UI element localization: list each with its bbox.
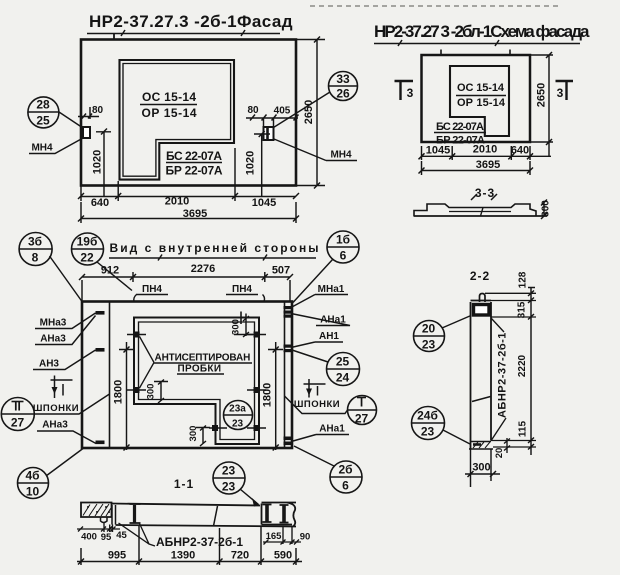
svg-text:2б: 2б [338, 463, 352, 477]
svg-text:АНа3: АНа3 [42, 420, 68, 431]
svg-text:БС 22-07А: БС 22-07А [166, 149, 222, 163]
svg-text:80: 80 [92, 105, 104, 116]
svg-text:23: 23 [232, 419, 244, 430]
svg-text:23а: 23а [229, 404, 246, 415]
svg-text:4б: 4б [25, 469, 39, 483]
svg-text:3б: 3б [28, 235, 42, 249]
svg-text:АНа1: АНа1 [319, 424, 345, 435]
svg-text:27: 27 [355, 412, 369, 426]
svg-text:3: 3 [557, 86, 564, 100]
svg-text:ОР 15-14: ОР 15-14 [457, 97, 506, 109]
svg-text:2220: 2220 [517, 354, 528, 377]
svg-text:300: 300 [146, 384, 157, 400]
svg-text:8: 8 [32, 251, 39, 265]
svg-text:ОР 15-14: ОР 15-14 [142, 106, 197, 120]
svg-text:АБНР2-37-2б-1: АБНР2-37-2б-1 [156, 535, 244, 549]
svg-text:300: 300 [472, 462, 490, 474]
svg-text:6: 6 [342, 479, 349, 493]
svg-text:720: 720 [231, 550, 249, 562]
svg-text:2-2: 2-2 [470, 269, 490, 283]
svg-text:АБНР2-37-2б-1: АБНР2-37-2б-1 [497, 332, 509, 418]
svg-text:33: 33 [336, 72, 350, 86]
svg-text:3695: 3695 [476, 159, 500, 171]
svg-text:995: 995 [108, 550, 126, 562]
svg-text:ШПОНКИ: ШПОНКИ [294, 399, 340, 410]
svg-text:24: 24 [336, 371, 350, 385]
svg-text:23: 23 [422, 338, 436, 352]
svg-text:23: 23 [222, 464, 236, 478]
svg-text:ПН4: ПН4 [142, 284, 162, 295]
svg-text:1020: 1020 [245, 151, 257, 175]
svg-text:128: 128 [518, 271, 529, 288]
svg-text:912: 912 [101, 265, 119, 277]
svg-text:1-1: 1-1 [174, 477, 194, 491]
svg-text:МНа1: МНа1 [318, 284, 345, 295]
svg-text:95: 95 [101, 532, 112, 543]
svg-text:25: 25 [36, 114, 50, 128]
svg-text:640: 640 [91, 197, 109, 209]
svg-text:10: 10 [26, 485, 40, 499]
svg-text:22: 22 [80, 251, 94, 265]
svg-text:2010: 2010 [165, 196, 189, 208]
svg-text:АНТИСЕПТИРОВАН: АНТИСЕПТИРОВАН [155, 353, 252, 364]
svg-text:АНа3: АНа3 [40, 334, 66, 345]
svg-text:6: 6 [340, 249, 347, 263]
svg-text:ПРОБКИ: ПРОБКИ [178, 364, 223, 375]
svg-text:МН4: МН4 [330, 150, 352, 161]
svg-text:1020: 1020 [92, 150, 104, 174]
svg-text:23: 23 [421, 425, 435, 439]
svg-text:20: 20 [422, 322, 436, 336]
svg-text:25: 25 [336, 355, 350, 369]
svg-text:1800: 1800 [262, 383, 274, 407]
svg-text:300: 300 [188, 426, 199, 442]
svg-text:90: 90 [300, 532, 311, 543]
svg-text:МНа3: МНа3 [40, 318, 67, 329]
svg-text:2010: 2010 [473, 144, 497, 156]
svg-text:20: 20 [494, 448, 505, 459]
svg-text:МН4: МН4 [31, 143, 53, 154]
svg-text:300: 300 [231, 319, 242, 335]
svg-text:НР2-37.27 3 -2бл-1Схема фасада: НР2-37.27 3 -2бл-1Схема фасада [374, 22, 590, 41]
svg-text:1390: 1390 [171, 550, 195, 562]
svg-text:1045: 1045 [426, 145, 450, 157]
svg-text:ОС 15-14: ОС 15-14 [142, 90, 196, 104]
svg-text:ПН4: ПН4 [232, 284, 252, 295]
svg-text:ОС 15-14: ОС 15-14 [457, 82, 505, 94]
svg-text:БС 22-07А: БС 22-07А [436, 121, 484, 133]
svg-text:24б: 24б [417, 409, 438, 423]
svg-text:115: 115 [518, 420, 529, 437]
svg-text:19б: 19б [77, 235, 98, 249]
svg-text:507: 507 [272, 265, 290, 277]
svg-text:ШПОНКИ: ШПОНКИ [33, 403, 79, 414]
svg-text:2276: 2276 [191, 263, 215, 275]
svg-text:165: 165 [266, 531, 283, 542]
svg-text:23: 23 [222, 480, 236, 494]
svg-text:2650: 2650 [303, 100, 315, 124]
svg-text:400: 400 [81, 532, 97, 543]
svg-text:АН1: АН1 [319, 331, 339, 342]
svg-text:45: 45 [116, 530, 127, 541]
svg-text:640: 640 [511, 145, 529, 157]
svg-text:1800: 1800 [113, 380, 125, 404]
svg-text:1045: 1045 [252, 197, 276, 209]
svg-text:1б: 1б [336, 233, 350, 247]
svg-text:3695: 3695 [183, 208, 207, 220]
svg-text:2650: 2650 [536, 83, 548, 107]
svg-text:315: 315 [517, 301, 528, 318]
svg-text:590: 590 [274, 550, 292, 562]
svg-text:300: 300 [541, 200, 552, 217]
svg-text:НР2-37.27.3 -2б-1Фасад: НР2-37.27.3 -2б-1Фасад [89, 12, 293, 31]
svg-text:БР 22-07А: БР 22-07А [166, 164, 223, 178]
svg-text:3: 3 [407, 86, 414, 100]
svg-text:Вид с внутренней стороны: Вид с внутренней стороны [110, 241, 319, 255]
svg-text:28: 28 [36, 98, 50, 112]
svg-text:АН3: АН3 [39, 359, 59, 370]
svg-text:27: 27 [11, 416, 25, 430]
svg-text:80: 80 [247, 105, 259, 116]
svg-text:26: 26 [336, 87, 350, 101]
